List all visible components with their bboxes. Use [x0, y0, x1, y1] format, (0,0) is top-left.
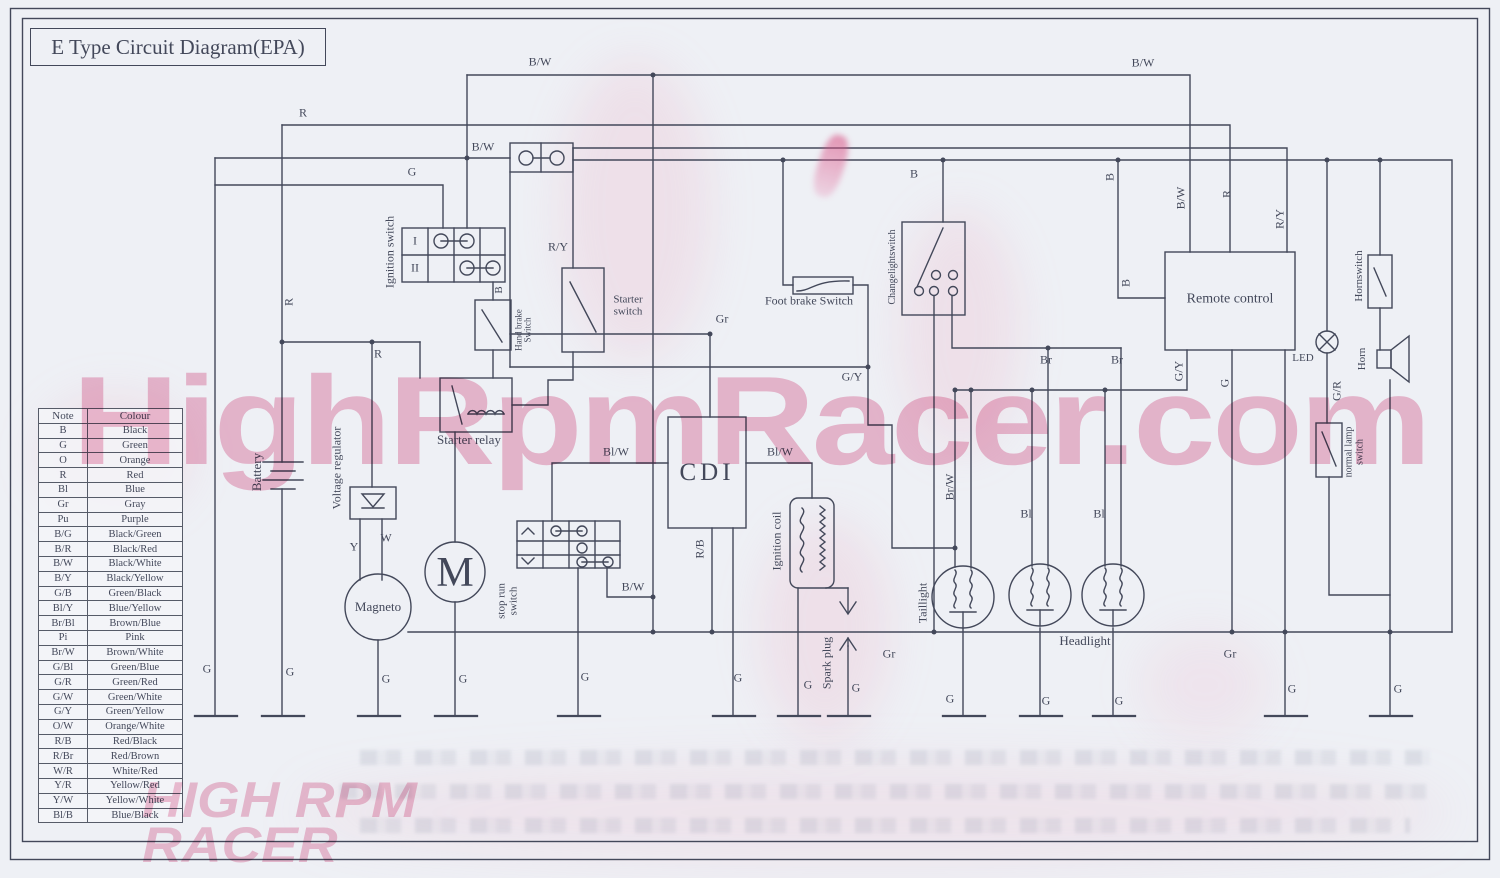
legend-row: G/YGreen/Yellow [39, 704, 183, 719]
horn-switch [1368, 255, 1392, 308]
legend-row: Br/BlBrown/Blue [39, 616, 183, 631]
legend-colour-cell: Green/Black [88, 586, 183, 601]
hand-brake-switch [475, 300, 511, 350]
legend-row: O/WOrange/White [39, 719, 183, 734]
legend-row: Bl/YBlue/Yellow [39, 601, 183, 616]
legend-row: Y/RYellow/Red [39, 778, 183, 793]
legend-colour-cell: Green/White [88, 690, 183, 705]
legend-row: PiPink [39, 630, 183, 645]
diagram-title-box: E Type Circuit Diagram(EPA) [30, 28, 326, 66]
legend-colour-cell: Blue [88, 482, 183, 497]
legend-colour-cell: Green/Blue [88, 660, 183, 675]
horn [1377, 336, 1409, 382]
legend-colour-cell: Pink [88, 630, 183, 645]
legend-note-cell: Bl [39, 482, 88, 497]
battery [263, 462, 303, 489]
legend-header-colour: Colour [88, 409, 183, 424]
legend-colour-cell: Black/White [88, 556, 183, 571]
legend-note-cell: O [39, 453, 88, 468]
legend-note-cell: Br/W [39, 645, 88, 660]
ignition-switch [402, 228, 505, 282]
legend-row: B/GBlack/Green [39, 527, 183, 542]
legend-colour-cell: Black/Red [88, 542, 183, 557]
legend-row: G/BGreen/Black [39, 586, 183, 601]
legend-colour-cell: Black/Green [88, 527, 183, 542]
legend-row: G/WGreen/White [39, 690, 183, 705]
legend-note-cell: R [39, 468, 88, 483]
starter-switch [562, 268, 604, 352]
legend-row: RRed [39, 468, 183, 483]
legend-row: B/RBlack/Red [39, 542, 183, 557]
diagram-title: E Type Circuit Diagram(EPA) [51, 35, 304, 60]
magneto [345, 574, 411, 640]
remote-control-box [1165, 252, 1295, 350]
legend-row: PuPurple [39, 512, 183, 527]
legend-colour-cell: Blue/Black [88, 808, 183, 823]
taillight [932, 566, 994, 628]
legend-note-cell: G [39, 438, 88, 453]
voltage-regulator [350, 487, 396, 519]
legend-note-cell: Br/Bl [39, 616, 88, 631]
legend-note-cell: G/Y [39, 704, 88, 719]
headlight-1 [1009, 564, 1071, 626]
legend-note-cell: O/W [39, 719, 88, 734]
led [1316, 331, 1338, 353]
page-borders [11, 9, 1490, 860]
ignition-coil [790, 498, 834, 588]
legend-note-cell: Pi [39, 630, 88, 645]
legend-row: Br/WBrown/White [39, 645, 183, 660]
legend-note-cell: B/Y [39, 571, 88, 586]
normal-lamp-switch [1316, 423, 1342, 477]
starter-relay [440, 378, 512, 432]
legend-note-cell: Y/R [39, 778, 88, 793]
legend-note-cell: B/R [39, 542, 88, 557]
legend-colour-cell: Brown/Blue [88, 616, 183, 631]
scanned-wiring-diagram-page: E Type Circuit Diagram(EPA) Note Colour … [0, 0, 1500, 878]
legend-colour-cell: Black [88, 423, 183, 438]
junction-dots [280, 73, 1393, 635]
legend-note-cell: Gr [39, 497, 88, 512]
legend-note-cell: G/B [39, 586, 88, 601]
foot-brake-switch [793, 277, 853, 294]
legend-row: W/RWhite/Red [39, 764, 183, 779]
legend-colour-cell: Green/Yellow [88, 704, 183, 719]
legend-row: Y/WYellow/White [39, 793, 183, 808]
legend-row: R/BrRed/Brown [39, 749, 183, 764]
legend-row: Bl/BBlue/Black [39, 808, 183, 823]
legend-colour-cell: Black/Yellow [88, 571, 183, 586]
legend-note-cell: R/B [39, 734, 88, 749]
legend-colour-cell: Red/Black [88, 734, 183, 749]
legend-row: B/YBlack/Yellow [39, 571, 183, 586]
cdi-box [668, 417, 746, 528]
wire-colour-legend: Note Colour BBlackGGreenOOrangeRRedBlBlu… [38, 408, 183, 823]
legend-row: B/WBlack/White [39, 556, 183, 571]
legend-note-cell: B [39, 423, 88, 438]
legend-row: BBlack [39, 423, 183, 438]
legend-colour-cell: Green [88, 438, 183, 453]
legend-colour-cell: Red [88, 468, 183, 483]
legend-colour-cell: Green/Red [88, 675, 183, 690]
stop-run-switch [517, 521, 620, 568]
legend-row: R/BRed/Black [39, 734, 183, 749]
legend-header-note: Note [39, 409, 88, 424]
legend-note-cell: B/W [39, 556, 88, 571]
legend-colour-cell: Blue/Yellow [88, 601, 183, 616]
legend-colour-cell: Gray [88, 497, 183, 512]
legend-row: G/BlGreen/Blue [39, 660, 183, 675]
legend-note-cell: G/R [39, 675, 88, 690]
legend-note-cell: Y/W [39, 793, 88, 808]
legend-note-cell: G/W [39, 690, 88, 705]
legend-note-cell: G/Bl [39, 660, 88, 675]
legend-colour-cell: Yellow/White [88, 793, 183, 808]
legend-note-cell: Pu [39, 512, 88, 527]
legend-row: G/RGreen/Red [39, 675, 183, 690]
legend-note-cell: B/G [39, 527, 88, 542]
legend-colour-cell: White/Red [88, 764, 183, 779]
legend-colour-cell: Brown/White [88, 645, 183, 660]
connector-block [510, 143, 573, 172]
legend-row: BlBlue [39, 482, 183, 497]
legend-colour-cell: Yellow/Red [88, 778, 183, 793]
legend-colour-cell: Purple [88, 512, 183, 527]
legend-note-cell: Bl/Y [39, 601, 88, 616]
legend-note-cell: Bl/B [39, 808, 88, 823]
legend-row: GrGray [39, 497, 183, 512]
legend-row: GGreen [39, 438, 183, 453]
headlight-2 [1082, 564, 1144, 626]
wiring-svg [0, 0, 1500, 878]
legend-colour-cell: Red/Brown [88, 749, 183, 764]
legend-row: OOrange [39, 453, 183, 468]
legend-colour-cell: Orange [88, 453, 183, 468]
legend-colour-cell: Orange/White [88, 719, 183, 734]
starter-motor [425, 542, 485, 602]
legend-note-cell: W/R [39, 764, 88, 779]
legend-note-cell: R/Br [39, 749, 88, 764]
